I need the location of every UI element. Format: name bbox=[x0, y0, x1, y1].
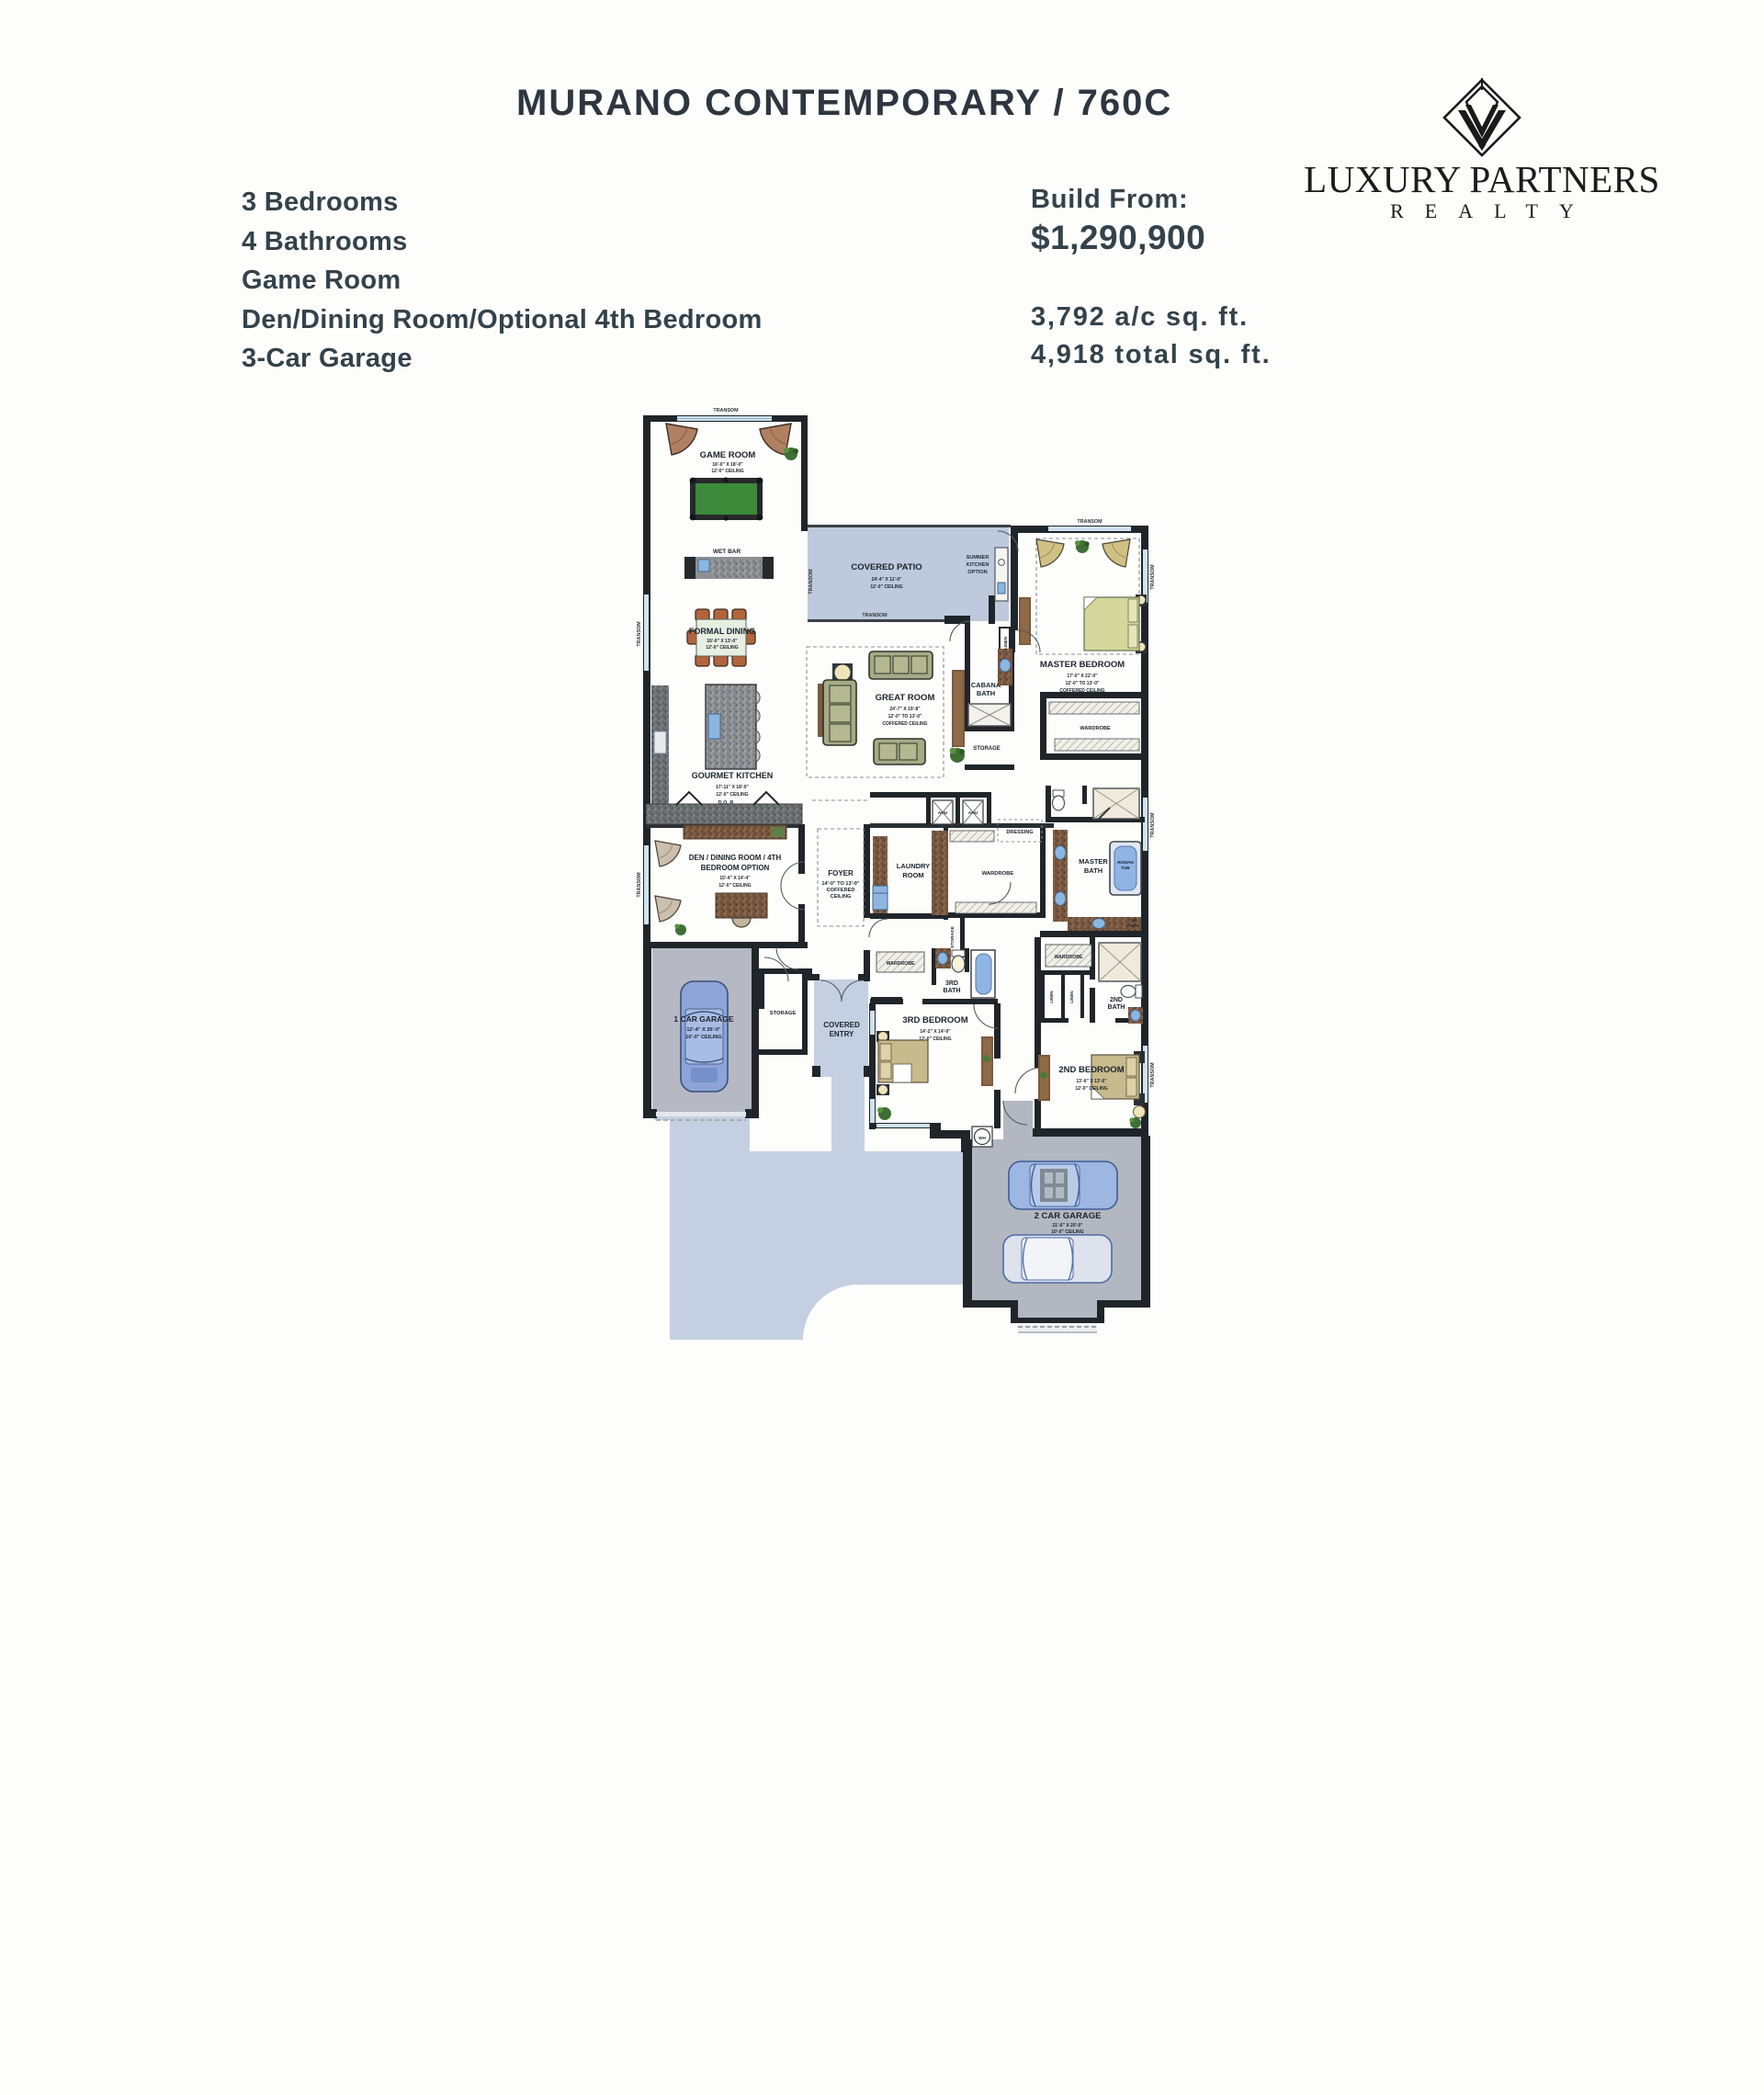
svg-text:17'-11" X 18'-0": 17'-11" X 18'-0" bbox=[716, 785, 749, 790]
svg-text:COVERED: COVERED bbox=[823, 1021, 860, 1029]
svg-text:16'-0" X 18'-0": 16'-0" X 18'-0" bbox=[712, 462, 743, 468]
svg-text:COVERED PATIO: COVERED PATIO bbox=[851, 562, 922, 572]
svg-text:15'-4" X 14'-4": 15'-4" X 14'-4" bbox=[719, 876, 751, 881]
svg-text:24'-4" X 11'-0": 24'-4" X 11'-0" bbox=[872, 577, 903, 583]
svg-text:2ND BEDROOM: 2ND BEDROOM bbox=[1058, 1065, 1124, 1075]
svg-text:TRANSOM: TRANSOM bbox=[1150, 564, 1156, 590]
svg-text:2 CAR GARAGE: 2 CAR GARAGE bbox=[1035, 1211, 1102, 1221]
svg-text:12'-0" CEILING: 12'-0" CEILING bbox=[711, 469, 743, 474]
svg-text:DRESSING: DRESSING bbox=[1006, 830, 1033, 835]
svg-text:WET BAR: WET BAR bbox=[713, 549, 741, 555]
svg-text:LINEN: LINEN bbox=[1003, 636, 1008, 649]
svg-text:FORMAL DINING: FORMAL DINING bbox=[689, 627, 755, 636]
svg-text:COFFERED CEILING: COFFERED CEILING bbox=[1059, 688, 1104, 694]
svg-text:TUB: TUB bbox=[1121, 866, 1130, 870]
svg-text:SUMMER: SUMMER bbox=[967, 555, 989, 561]
svg-text:GAME ROOM: GAME ROOM bbox=[700, 450, 756, 460]
svg-text:24'-7" X 19'-8": 24'-7" X 19'-8" bbox=[889, 707, 921, 712]
svg-text:WH: WH bbox=[978, 1136, 986, 1140]
svg-text:ENTRY: ENTRY bbox=[830, 1030, 854, 1038]
svg-text:3RD BEDROOM: 3RD BEDROOM bbox=[902, 1015, 967, 1025]
svg-text:OPTION: OPTION bbox=[967, 570, 987, 575]
svg-text:DEN / DINING ROOM / 4TH: DEN / DINING ROOM / 4TH bbox=[689, 854, 782, 862]
svg-text:KITCHEN: KITCHEN bbox=[967, 562, 989, 568]
svg-text:TRANSOM: TRANSOM bbox=[1150, 812, 1156, 838]
svg-text:12'-0" CEILING: 12'-0" CEILING bbox=[706, 645, 738, 651]
svg-text:12'-0" CEILING: 12'-0" CEILING bbox=[1075, 1086, 1107, 1092]
svg-text:ROOM: ROOM bbox=[902, 871, 923, 879]
svg-text:WARDROBE: WARDROBE bbox=[1080, 726, 1111, 731]
svg-text:CAB: CAB bbox=[1128, 918, 1137, 923]
svg-text:COFFERED CEILING: COFFERED CEILING bbox=[882, 721, 927, 727]
svg-text:STORAGE: STORAGE bbox=[973, 746, 1001, 752]
svg-text:MASTER: MASTER bbox=[1079, 857, 1108, 866]
svg-text:12'-4" X 26'-0": 12'-4" X 26'-0" bbox=[686, 1027, 721, 1033]
svg-text:21'-6" X 20'-0": 21'-6" X 20'-0" bbox=[1052, 1223, 1083, 1229]
svg-text:BATH: BATH bbox=[1108, 1004, 1125, 1011]
svg-text:12'-0" TO 13'-0": 12'-0" TO 13'-0" bbox=[1066, 681, 1100, 686]
svg-text:COFFERED: COFFERED bbox=[827, 888, 855, 893]
svg-text:TRANSOM: TRANSOM bbox=[808, 569, 814, 595]
svg-text:BATH: BATH bbox=[977, 689, 995, 697]
svg-text:TRANSOM: TRANSOM bbox=[1150, 1062, 1156, 1088]
svg-text:LAUNDRY: LAUNDRY bbox=[897, 862, 930, 870]
svg-text:WARDROBE: WARDROBE bbox=[1055, 955, 1083, 960]
svg-text:GREAT ROOM: GREAT ROOM bbox=[876, 693, 935, 703]
svg-text:13'-6" X 13'-6": 13'-6" X 13'-6" bbox=[1076, 1079, 1107, 1084]
svg-text:STORAGE: STORAGE bbox=[770, 1011, 797, 1016]
svg-text:STORAGE: STORAGE bbox=[950, 925, 955, 947]
svg-text:10'-0" CEILING: 10'-0" CEILING bbox=[685, 1035, 721, 1040]
svg-text:LINEN: LINEN bbox=[1049, 991, 1054, 1002]
svg-text:FOYER: FOYER bbox=[828, 869, 854, 878]
svg-text:16'-0" X 13'-0": 16'-0" X 13'-0" bbox=[707, 639, 738, 644]
svg-text:1 CAR GARAGE: 1 CAR GARAGE bbox=[673, 1014, 734, 1024]
svg-text:LINEN: LINEN bbox=[1126, 923, 1138, 928]
svg-text:12'-0" CEILING: 12'-0" CEILING bbox=[718, 883, 751, 889]
svg-text:ROMAN: ROMAN bbox=[1117, 860, 1134, 865]
svg-text:14'-0" TO 13'-0": 14'-0" TO 13'-0" bbox=[821, 881, 859, 887]
svg-text:TRANSOM: TRANSOM bbox=[1077, 519, 1102, 525]
svg-text:AHU: AHU bbox=[968, 810, 978, 816]
svg-text:WARDROBE: WARDROBE bbox=[982, 871, 1014, 877]
svg-text:10'-0" CEILING: 10'-0" CEILING bbox=[1051, 1229, 1083, 1235]
svg-text:TRANSOM: TRANSOM bbox=[637, 621, 642, 647]
svg-text:TRANSOM: TRANSOM bbox=[862, 613, 888, 618]
svg-text:12'-0" TO 13'-0": 12'-0" TO 13'-0" bbox=[888, 714, 922, 719]
svg-text:2ND: 2ND bbox=[1110, 997, 1123, 1003]
svg-text:3RD: 3RD bbox=[945, 980, 958, 987]
svg-text:12'-0" CEILING: 12'-0" CEILING bbox=[716, 792, 748, 798]
svg-text:GOURMET KITCHEN: GOURMET KITCHEN bbox=[692, 771, 774, 780]
svg-text:WARDROBE: WARDROBE bbox=[887, 961, 915, 967]
svg-text:17'-0" X 22'-0": 17'-0" X 22'-0" bbox=[1067, 674, 1098, 679]
svg-text:14'-2" X 14'-0": 14'-2" X 14'-0" bbox=[920, 1029, 951, 1035]
svg-text:BATH: BATH bbox=[1084, 866, 1102, 875]
svg-text:BEDROOM OPTION: BEDROOM OPTION bbox=[701, 864, 770, 872]
svg-text:CABANA: CABANA bbox=[971, 681, 1001, 689]
svg-text:BATH: BATH bbox=[944, 988, 961, 994]
svg-text:CEILING: CEILING bbox=[831, 894, 852, 900]
svg-text:TRANSOM: TRANSOM bbox=[637, 872, 642, 898]
svg-text:12'-0" CEILING: 12'-0" CEILING bbox=[870, 584, 902, 590]
svg-text:LINEN: LINEN bbox=[1069, 991, 1074, 1002]
svg-text:TRANSOM: TRANSOM bbox=[713, 408, 739, 413]
svg-text:AHU: AHU bbox=[938, 810, 948, 816]
svg-text:MASTER BEDROOM: MASTER BEDROOM bbox=[1040, 660, 1125, 670]
